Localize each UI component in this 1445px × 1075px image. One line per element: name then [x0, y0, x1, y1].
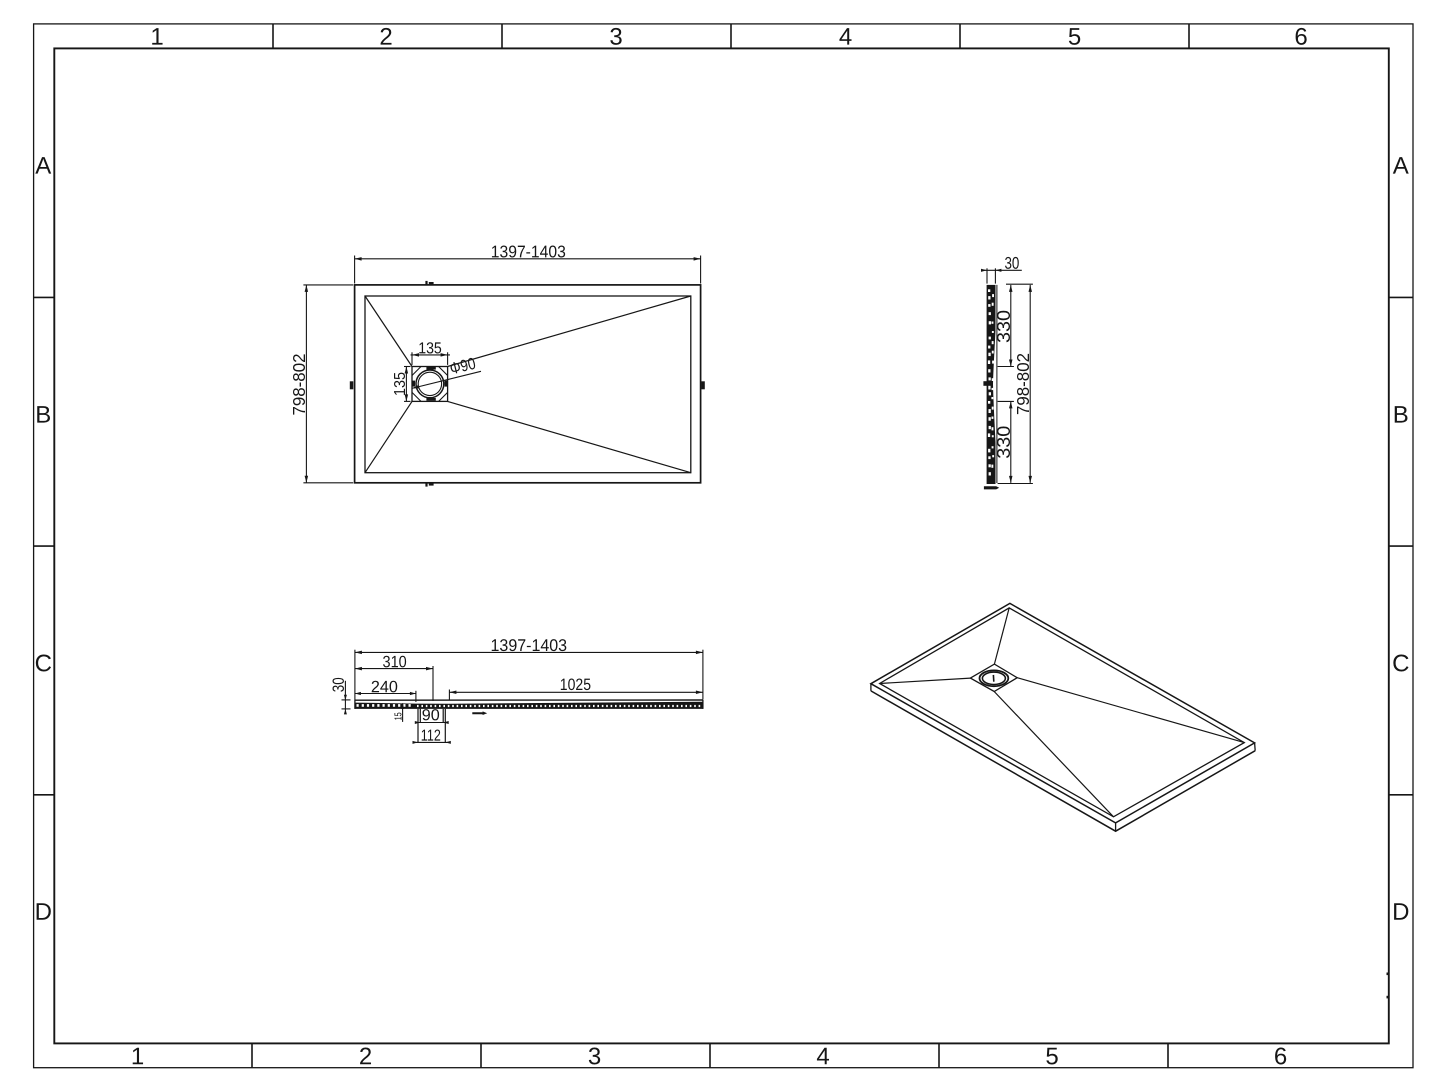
- svg-text:30: 30: [1004, 254, 1019, 273]
- svg-text:3: 3: [588, 1043, 601, 1070]
- svg-text:5: 5: [1068, 24, 1081, 51]
- svg-text:C: C: [1392, 650, 1409, 677]
- svg-text:4: 4: [839, 24, 852, 51]
- svg-text:330: 330: [994, 310, 1014, 343]
- svg-text:6: 6: [1294, 24, 1307, 51]
- svg-text:2: 2: [379, 24, 392, 51]
- svg-text:B: B: [1393, 402, 1409, 429]
- svg-text:330: 330: [994, 426, 1014, 459]
- svg-text:3: 3: [609, 24, 622, 51]
- svg-text:798-802: 798-802: [289, 354, 309, 416]
- svg-text:1025: 1025: [560, 676, 591, 694]
- svg-text:2: 2: [359, 1043, 372, 1070]
- svg-text:4: 4: [816, 1043, 829, 1070]
- svg-text:1397-1403: 1397-1403: [490, 636, 567, 655]
- svg-text:240: 240: [371, 678, 398, 696]
- svg-text:1: 1: [131, 1043, 144, 1070]
- svg-text:D: D: [35, 899, 52, 926]
- svg-text:310: 310: [382, 653, 406, 671]
- svg-text:B: B: [35, 402, 51, 429]
- svg-text:90: 90: [422, 707, 440, 724]
- svg-text:A: A: [35, 153, 51, 180]
- svg-text:112: 112: [421, 728, 441, 745]
- svg-text:6: 6: [1274, 1043, 1287, 1070]
- svg-text:135: 135: [418, 340, 442, 357]
- svg-text:135: 135: [392, 372, 409, 396]
- svg-text:5: 5: [1045, 1043, 1058, 1070]
- svg-text:1: 1: [150, 24, 163, 51]
- svg-text:C: C: [35, 650, 52, 677]
- svg-text:A: A: [1393, 153, 1409, 180]
- svg-text:D: D: [1392, 899, 1409, 926]
- svg-text:1397-1403: 1397-1403: [491, 242, 566, 261]
- svg-text:798-802: 798-802: [1013, 353, 1033, 415]
- svg-text:30: 30: [329, 677, 348, 692]
- svg-text:15: 15: [393, 712, 404, 720]
